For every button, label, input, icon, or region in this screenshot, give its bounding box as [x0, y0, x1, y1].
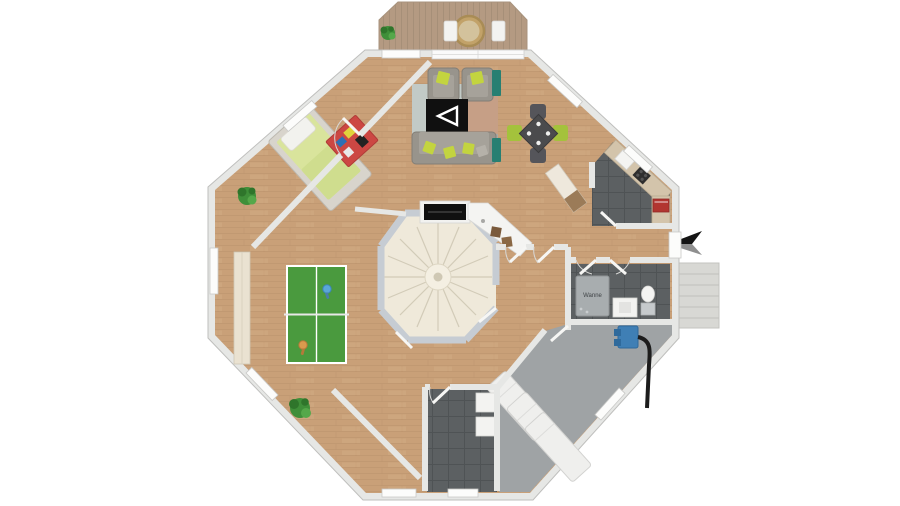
- deck-chair-left: [444, 21, 457, 41]
- bathtub-label: Wanne: [583, 293, 602, 299]
- armchair-left: [428, 68, 459, 101]
- floor-plan-canvas: Wanne: [0, 0, 900, 506]
- deck-terrace: [379, 2, 527, 54]
- window: [382, 50, 420, 58]
- window: [382, 489, 416, 497]
- sliding-door: [432, 50, 524, 59]
- oven: [653, 199, 669, 212]
- basin: [619, 302, 631, 313]
- entry-door-opening: [669, 232, 681, 258]
- window: [210, 248, 218, 294]
- pillow: [462, 142, 475, 155]
- ping-pong-table: [284, 266, 349, 363]
- pillow: [470, 71, 484, 85]
- sofa: [412, 132, 496, 164]
- teal-cabinet-bottom: [492, 138, 501, 162]
- deck-chair-right: [492, 21, 505, 41]
- exterior-stairs: [678, 263, 719, 328]
- tv-unit: [426, 99, 468, 132]
- spiral-staircase-icon: [381, 213, 496, 340]
- teal-cabinet-top: [492, 70, 501, 96]
- stair-center-post: [434, 273, 443, 282]
- deck-table-top: [459, 21, 480, 42]
- firewood: [490, 226, 502, 238]
- armchair-right: [462, 68, 493, 101]
- floor-plan: Wanne: [0, 0, 900, 506]
- window: [448, 489, 478, 497]
